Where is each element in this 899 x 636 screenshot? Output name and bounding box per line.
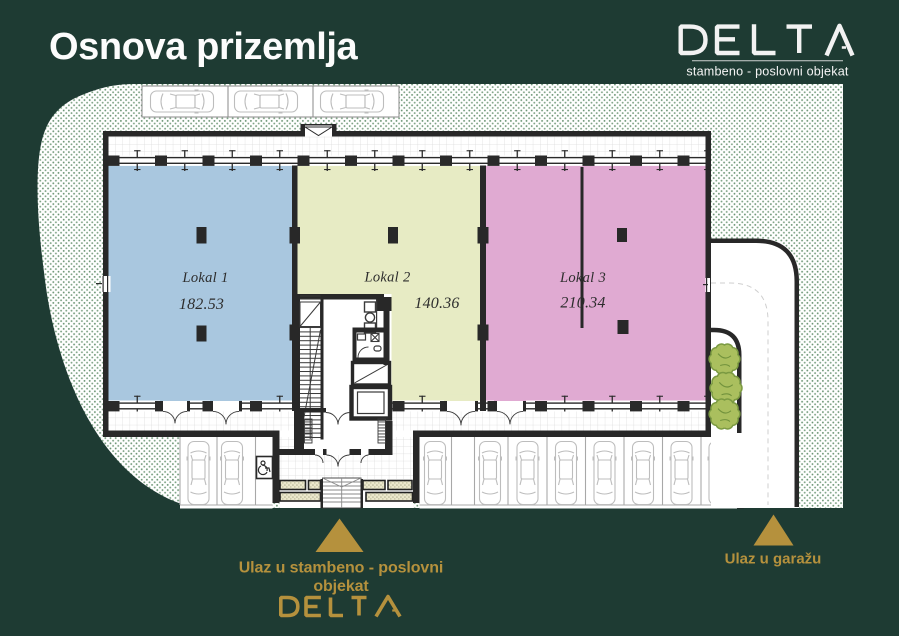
svg-text:Lokal 1: Lokal 1	[181, 270, 228, 286]
svg-text:Ulaz u stambeno - poslovni: Ulaz u stambeno - poslovni	[239, 560, 444, 577]
svg-text:Lokal 2: Lokal 2	[363, 270, 410, 286]
svg-text:Lokal 3: Lokal 3	[559, 270, 606, 286]
svg-text:Ulaz u garažu: Ulaz u garažu	[725, 551, 822, 568]
svg-text:140.36: 140.36	[414, 295, 459, 312]
svg-text:182.53: 182.53	[179, 296, 224, 313]
svg-text:Osnova prizemlja: Osnova prizemlja	[49, 26, 359, 68]
svg-text:210.34: 210.34	[560, 295, 605, 312]
svg-text:objekat: objekat	[313, 578, 369, 595]
svg-text:stambeno - poslovni objekat: stambeno - poslovni objekat	[686, 65, 849, 79]
